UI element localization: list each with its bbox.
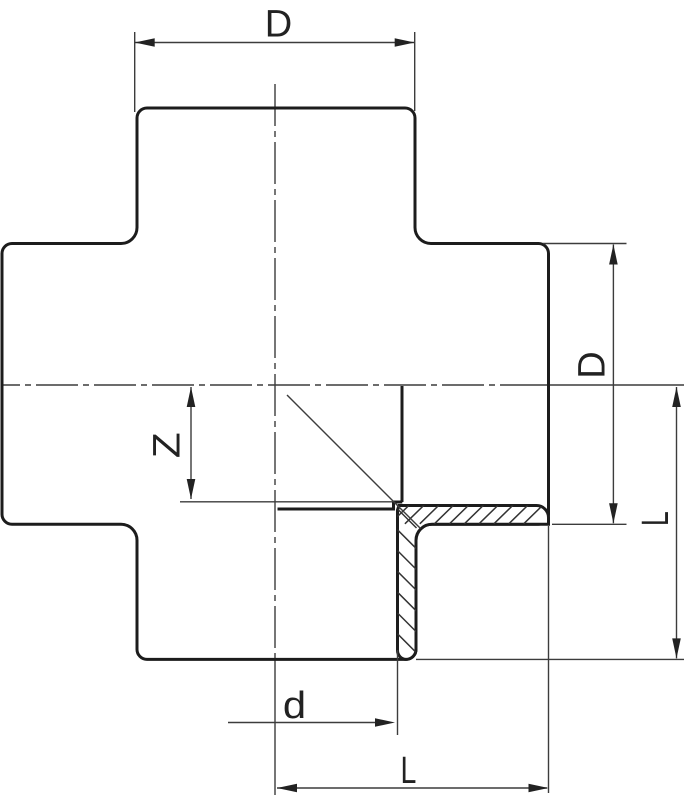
svg-text:d: d [283,685,306,727]
svg-text:D: D [572,351,614,378]
svg-text:D: D [265,4,292,46]
svg-text:L: L [401,750,417,792]
svg-text:L: L [633,511,676,526]
svg-text:Z: Z [145,432,188,458]
